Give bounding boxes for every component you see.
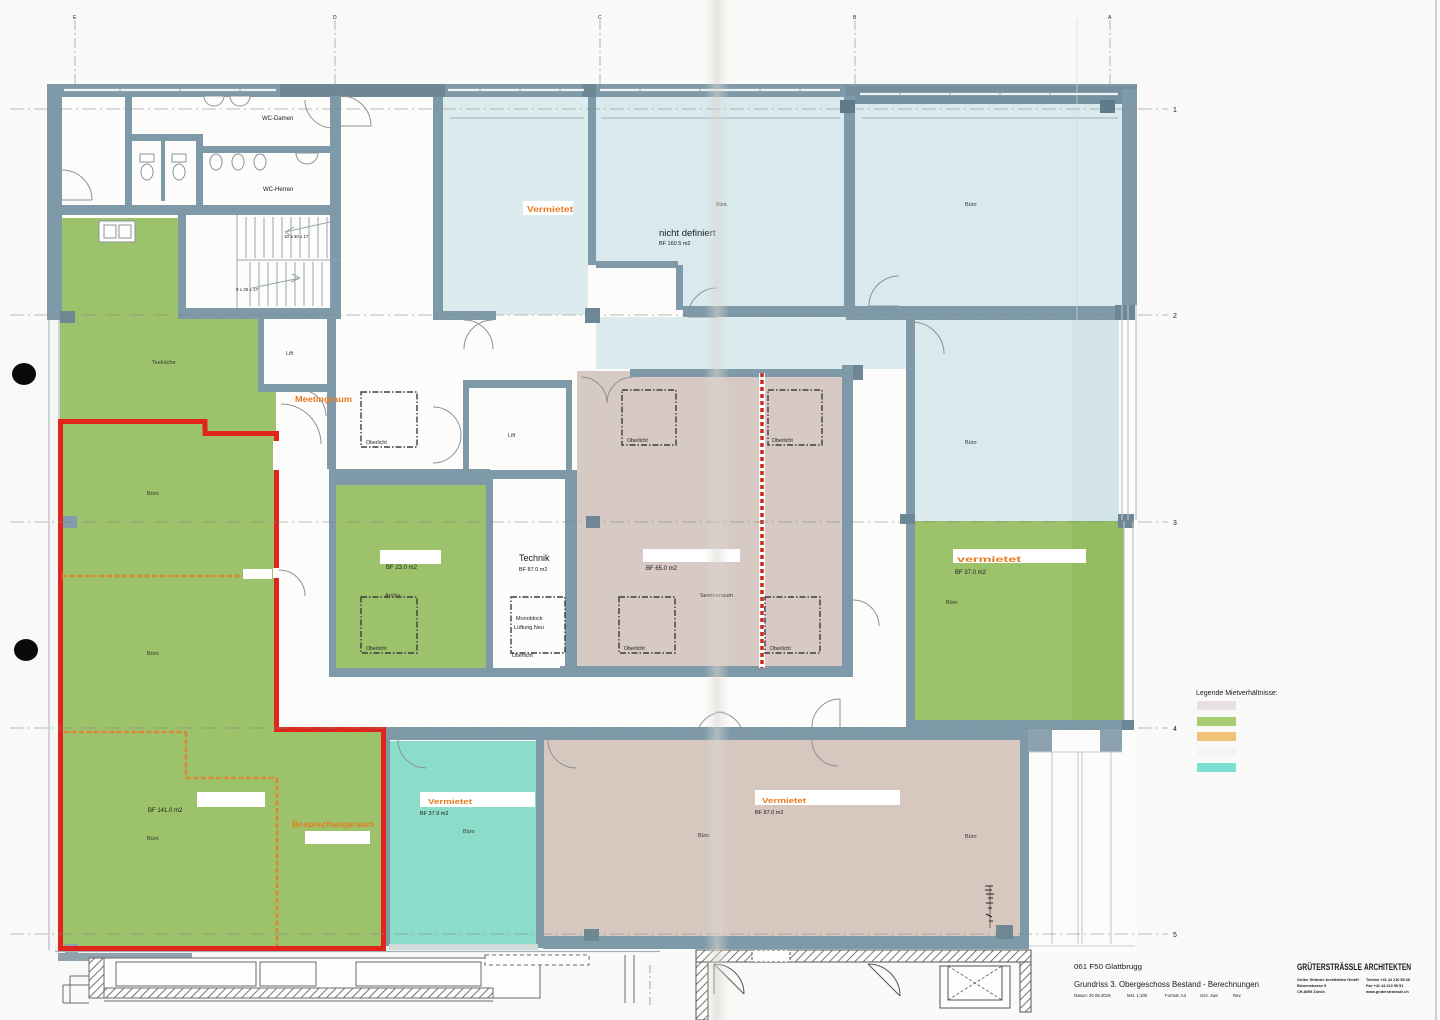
- svg-text:Lift: Lift: [286, 351, 294, 357]
- svg-text:BF 160.5 m2: BF 160.5 m2: [659, 241, 691, 247]
- svg-text:Vermietet: Vermietet: [428, 797, 473, 806]
- svg-text:Teeküche: Teeküche: [152, 360, 176, 366]
- svg-text:Oberlicht: Oberlicht: [772, 438, 793, 444]
- svg-text:BF 37.9 m2: BF 37.9 m2: [420, 811, 448, 817]
- svg-text:Meetingraum: Meetingraum: [295, 395, 352, 404]
- svg-text:BF 65.0 m2: BF 65.0 m2: [646, 566, 678, 572]
- svg-text:GRÜTERSTRÄSSLE: GRÜTERSTRÄSSLE: [1297, 962, 1362, 973]
- svg-text:Oberlicht: Oberlicht: [512, 653, 533, 659]
- svg-text:Oberlicht: Oberlicht: [627, 438, 648, 444]
- svg-text:Telefon +41 44 210 55 66: Telefon +41 44 210 55 66: [1366, 978, 1410, 982]
- svg-text:Büro: Büro: [147, 651, 159, 657]
- svg-text:Gez. zwe: Gez. zwe: [1200, 993, 1219, 998]
- svg-text:BF 87.0 m2: BF 87.0 m2: [755, 810, 783, 816]
- svg-text:Oberlicht: Oberlicht: [624, 646, 645, 652]
- svg-text:Rev.: Rev.: [1233, 993, 1242, 998]
- svg-text:Archiv: Archiv: [385, 593, 401, 599]
- svg-text:Lüftung Neu: Lüftung Neu: [514, 625, 544, 631]
- svg-text:9 x 30 x 17: 9 x 30 x 17: [236, 287, 259, 292]
- svg-text:Büro: Büro: [965, 202, 977, 208]
- svg-text:ARCHITEKTEN: ARCHITEKTEN: [1364, 962, 1411, 972]
- svg-text:Monoblock: Monoblock: [516, 616, 543, 622]
- svg-text:Büro: Büro: [965, 834, 977, 840]
- svg-text:Lift: Lift: [508, 433, 516, 439]
- svg-text:BF 87.0 m2: BF 87.0 m2: [519, 567, 547, 573]
- svg-text:4: 4: [1173, 726, 1177, 733]
- svg-text:Oberlicht: Oberlicht: [770, 646, 791, 652]
- svg-text:Vermietet: Vermietet: [527, 205, 573, 214]
- svg-text:1: 1: [1173, 107, 1177, 114]
- svg-text:3: 3: [1173, 520, 1177, 527]
- svg-text:Datum: 20.06.2019: Datum: 20.06.2019: [1074, 993, 1111, 998]
- svg-text:Büro: Büro: [147, 491, 159, 497]
- svg-text:BF 23.0 m2: BF 23.0 m2: [386, 565, 418, 571]
- svg-text:Büro: Büro: [463, 829, 475, 835]
- svg-text:Bienenstrasse 9: Bienenstrasse 9: [1297, 984, 1326, 988]
- svg-text:Besprechungsraum: Besprechungsraum: [292, 820, 374, 829]
- svg-text:CH-8059 Zürich: CH-8059 Zürich: [1297, 990, 1326, 994]
- svg-text:Büro: Büro: [147, 836, 159, 842]
- svg-text:Mst. 1:100: Mst. 1:100: [1127, 993, 1148, 998]
- svg-text:Fax +41 44 210 55 51: Fax +41 44 210 55 51: [1366, 984, 1403, 988]
- svg-text:BF 141.0 m2: BF 141.0 m2: [148, 808, 183, 814]
- svg-text:Grüter Strässle Architekten Gm: Grüter Strässle Architekten GmbH: [1297, 978, 1359, 982]
- svg-text:Büro: Büro: [946, 600, 958, 606]
- svg-text:www.gruterstraessle.ch: www.gruterstraessle.ch: [1365, 990, 1409, 994]
- svg-text:Technik: Technik: [519, 553, 550, 563]
- svg-text:vermietet: vermietet: [957, 555, 1022, 564]
- svg-text:Format: A3: Format: A3: [1165, 993, 1187, 998]
- svg-text:5: 5: [1173, 932, 1177, 939]
- svg-text:WC-Damen: WC-Damen: [262, 116, 293, 122]
- svg-text:061 F50 Glattbrugg: 061 F50 Glattbrugg: [1074, 962, 1142, 971]
- svg-text:Vermietet: Vermietet: [762, 796, 807, 805]
- svg-text:Oberlicht: Oberlicht: [366, 646, 387, 652]
- svg-text:BF 37.0 m2: BF 37.0 m2: [955, 570, 987, 576]
- svg-text:Büro: Büro: [965, 440, 977, 446]
- svg-text:Grundriss 3. Obergeschoss Best: Grundriss 3. Obergeschoss Bestand - Bere…: [1074, 980, 1259, 989]
- svg-text:Legende Mietverhältnisse:: Legende Mietverhältnisse:: [1196, 690, 1278, 697]
- svg-text:10 x 30 x 17: 10 x 30 x 17: [284, 234, 309, 239]
- svg-text:WC-Herren: WC-Herren: [263, 187, 293, 193]
- svg-text:2: 2: [1173, 313, 1177, 320]
- svg-text:Oberlicht: Oberlicht: [366, 440, 387, 446]
